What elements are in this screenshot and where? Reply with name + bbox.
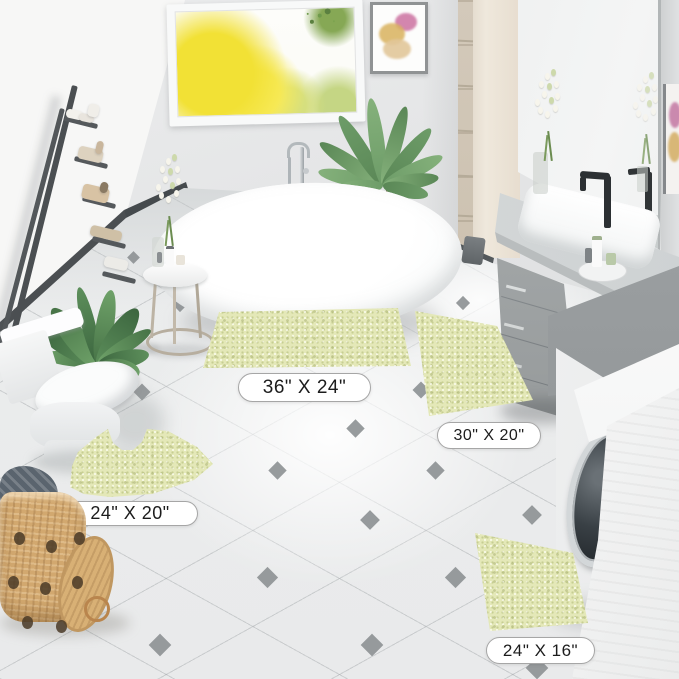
- flower-blossom: [545, 73, 550, 80]
- wall-art-right-yellow: [668, 132, 679, 162]
- flower-blossom: [636, 110, 641, 117]
- tile-accent-diamond: [149, 634, 172, 657]
- size-label-24x16-text: 24" X 16": [503, 641, 578, 661]
- size-label-30x20-text: 30" X 20": [453, 427, 524, 445]
- table-bottle: [166, 246, 174, 266]
- bathroom-scene: 36" X 24" 30" X 20" 24" X 20" 24" X 16": [0, 0, 679, 679]
- window: [166, 0, 365, 127]
- window-branch: [325, 8, 331, 14]
- flower-blossom: [653, 96, 658, 103]
- flower-blossom: [640, 94, 645, 101]
- basket-dot: [72, 576, 83, 589]
- flower-blossom: [554, 81, 559, 88]
- flower-blossom: [172, 154, 177, 161]
- flower-blossom: [176, 178, 181, 185]
- flower-blossom: [175, 166, 180, 173]
- wall-art-left: [370, 2, 428, 74]
- counter-vase: [533, 152, 548, 194]
- flower-blossom: [547, 83, 552, 90]
- basket-lid-handle: [84, 596, 110, 622]
- size-label-30x20: 30" X 20": [437, 422, 541, 449]
- size-label-36x24-text: 36" X 24": [263, 377, 347, 399]
- tile-accent-diamond: [361, 634, 384, 657]
- flower-blossom: [633, 102, 638, 109]
- flower-blossom: [538, 107, 543, 114]
- flower-blossom: [168, 168, 173, 175]
- wall-art-flower-peach: [383, 39, 411, 59]
- waste-bin: [461, 236, 486, 266]
- flower-blossom: [649, 72, 654, 79]
- counter-tray: [578, 260, 627, 282]
- flower-blossom: [637, 84, 642, 91]
- table-small-bottle: [157, 252, 162, 263]
- wall-art-right: [663, 84, 679, 194]
- mirror-vase-reflection: [637, 166, 648, 192]
- flower-blossom: [551, 69, 556, 76]
- flower-blossom: [643, 114, 648, 121]
- flower-blossom: [156, 184, 161, 191]
- flower-blossom: [555, 93, 560, 100]
- basket-dot: [46, 540, 57, 553]
- flower-blossom: [651, 108, 656, 115]
- size-label-24x20-text: 24" X 20": [90, 503, 169, 524]
- flower-blossom: [159, 192, 164, 199]
- green-jar: [606, 253, 616, 265]
- flower-blossom: [174, 190, 179, 197]
- basket-dot: [56, 620, 67, 633]
- size-label-24x16: 24" X 16": [486, 637, 595, 664]
- side-table-leg-mid: [173, 284, 176, 344]
- flower-blossom: [652, 84, 657, 91]
- flower-blossom: [542, 91, 547, 98]
- flower-blossom: [166, 196, 171, 203]
- flower-blossom: [643, 76, 648, 83]
- flower-blossom: [645, 86, 650, 93]
- basket-dot: [8, 576, 19, 589]
- side-table-ring-base: [146, 328, 214, 356]
- table-jar: [176, 255, 185, 265]
- dark-bottle: [585, 248, 592, 263]
- window-glass: [175, 7, 358, 118]
- flower-blossom: [539, 81, 544, 88]
- basket-dot: [22, 616, 33, 629]
- basket-dot: [40, 582, 51, 595]
- flower-blossom: [545, 111, 550, 118]
- soap-dispenser: [592, 236, 602, 267]
- flower-blossom: [535, 99, 540, 106]
- size-label-36x24: 36" X 24": [238, 373, 371, 402]
- flower-blossom: [549, 97, 554, 104]
- flower-blossom: [647, 100, 652, 107]
- flower-blossom: [170, 182, 175, 189]
- flower-blossom: [163, 176, 168, 183]
- flower-blossom: [553, 105, 558, 112]
- basket-dot: [74, 532, 85, 545]
- basket-dot: [14, 532, 25, 545]
- vanity-faucet-spout: [580, 177, 586, 191]
- vanity-faucet: [604, 176, 611, 228]
- tub-faucet-handle: [303, 168, 309, 174]
- wall-art-right-pink: [669, 102, 679, 128]
- tub-faucet-spout: [287, 142, 310, 158]
- flower-blossom: [166, 158, 171, 165]
- flower-blossom: [160, 166, 165, 173]
